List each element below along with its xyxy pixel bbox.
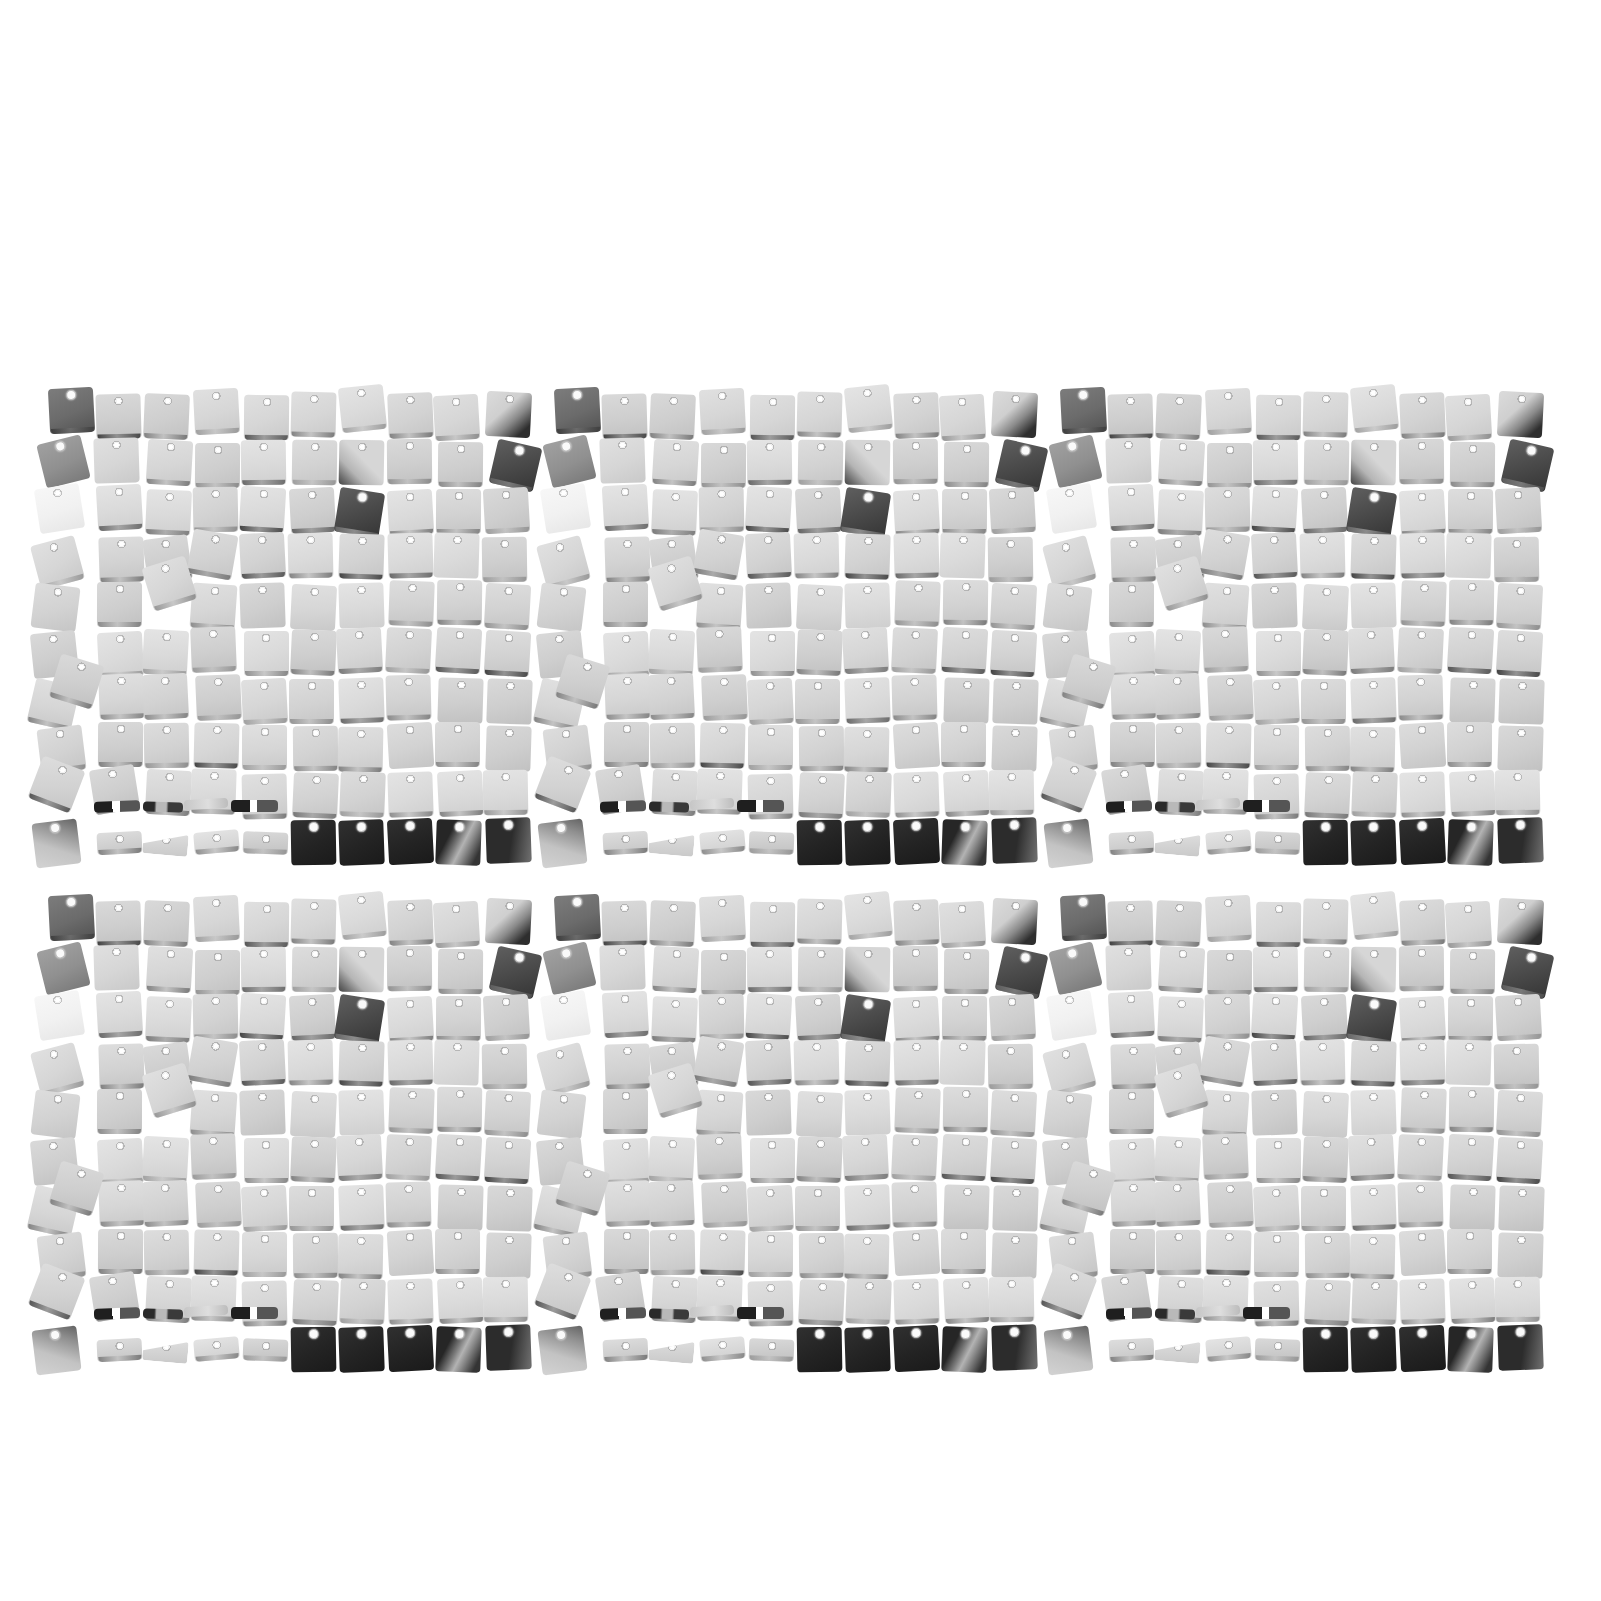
sequin-light xyxy=(485,725,531,771)
sequin-black xyxy=(796,819,842,865)
pin-hole-icon xyxy=(1172,538,1183,549)
pin-hole-icon xyxy=(555,822,566,833)
sequin-half-wedge xyxy=(1154,1338,1201,1364)
pin-hole-icon xyxy=(1008,820,1018,830)
sequin-light xyxy=(795,584,842,631)
sequin-bottom-edge xyxy=(242,572,285,579)
sequin-light xyxy=(437,1087,482,1132)
pin-hole-icon xyxy=(308,901,318,911)
pin-hole-icon xyxy=(553,541,565,553)
sequin-dark2 xyxy=(840,993,891,1044)
pin-hole-icon xyxy=(1221,1278,1231,1288)
sequin-bottom-edge xyxy=(1402,939,1445,946)
pin-hole-icon xyxy=(911,395,921,405)
sequin-light xyxy=(437,949,482,994)
pin-hole-icon xyxy=(454,491,464,501)
sequin-light xyxy=(536,1042,591,1097)
sequin-light xyxy=(748,725,793,770)
pin-hole-icon xyxy=(1516,1235,1526,1245)
sequin-bottom-edge xyxy=(894,478,937,483)
sequin-light xyxy=(748,1280,794,1326)
sequin-light xyxy=(749,395,794,440)
pin-hole-icon xyxy=(403,1184,413,1194)
sequin-light xyxy=(434,1039,480,1085)
sequin-bottom-edge xyxy=(534,1301,576,1321)
sequin-bottom-edge xyxy=(390,811,433,817)
sequin-grad-top xyxy=(537,1325,587,1375)
sequin-bottom-edge xyxy=(1498,527,1541,534)
sequin-bottom-edge xyxy=(895,620,938,627)
sequin-black-side xyxy=(1497,817,1544,864)
sequin-bottom-edge xyxy=(749,1272,792,1277)
pin-hole-icon xyxy=(310,441,320,451)
sequin-light xyxy=(941,1134,989,1182)
sequin-bottom-edge xyxy=(797,432,840,438)
pin-hole-icon xyxy=(259,489,270,500)
sequin-light xyxy=(388,532,434,578)
sequin-light xyxy=(186,528,238,580)
sequin-light xyxy=(97,1089,142,1134)
pin-hole-icon xyxy=(1369,536,1379,546)
sequin-light xyxy=(940,1039,986,1085)
pin-hole-icon xyxy=(1064,1094,1075,1105)
sequin-bottom-edge xyxy=(894,985,937,990)
sequin-bottom-edge xyxy=(990,1316,1033,1322)
sequin-light xyxy=(1204,486,1250,532)
pin-hole-icon xyxy=(164,492,174,502)
pin-hole-icon xyxy=(814,632,824,642)
pin-hole-icon xyxy=(1515,1140,1526,1151)
sequin-light xyxy=(437,1185,483,1231)
sequin-light xyxy=(1042,1090,1092,1140)
sequin-bottom-edge xyxy=(944,620,987,625)
pin-hole-icon xyxy=(210,391,221,402)
pin-hole-icon xyxy=(1270,441,1280,451)
sequin-light xyxy=(242,1232,287,1277)
pin-hole-icon xyxy=(619,487,630,498)
sequin-light xyxy=(30,583,80,633)
sequin-bottom-edge xyxy=(436,762,479,767)
pin-hole-icon xyxy=(667,725,677,735)
sequin-sliver-notch xyxy=(1243,800,1290,812)
sequin-dark2 xyxy=(1346,993,1397,1044)
sequin-light xyxy=(1302,1136,1349,1183)
pin-hole-icon xyxy=(113,396,123,406)
pin-hole-icon xyxy=(1271,996,1282,1007)
pin-hole-icon xyxy=(164,999,174,1009)
sequin-bottom-edge xyxy=(1207,1353,1250,1362)
sequin-light xyxy=(1110,722,1155,767)
pin-hole-icon xyxy=(1368,1186,1378,1196)
sequin-light xyxy=(603,1089,648,1134)
pin-hole-icon xyxy=(765,1283,775,1293)
pin-hole-icon xyxy=(1467,951,1477,961)
sequin-light xyxy=(1494,487,1541,534)
pin-hole-icon xyxy=(258,441,268,451)
sequin-bottom-edge xyxy=(98,1355,141,1362)
pin-hole-icon xyxy=(503,1140,514,1151)
pin-hole-icon xyxy=(863,536,873,546)
sequin-bottom-edge xyxy=(942,762,985,767)
sequin-grad-bl xyxy=(845,947,891,993)
sequin-light xyxy=(1350,1184,1397,1231)
sequin-light xyxy=(1255,902,1300,947)
pin-hole-icon xyxy=(766,1234,776,1244)
pin-hole-icon xyxy=(862,1329,872,1339)
sequin-light xyxy=(1155,900,1202,947)
sequin-light xyxy=(1495,1090,1542,1137)
pin-hole-icon xyxy=(113,487,124,498)
sequin-light xyxy=(1154,673,1201,720)
sequin-light xyxy=(1300,532,1346,578)
sequin-bottom-edge xyxy=(145,763,188,769)
pin-hole-icon xyxy=(765,776,775,786)
pin-hole-icon xyxy=(1370,1281,1380,1291)
pin-hole-icon xyxy=(452,534,462,544)
sequin-black-grad xyxy=(941,819,988,866)
sequin-bottom-edge xyxy=(799,1319,842,1326)
pin-hole-icon xyxy=(1419,582,1429,592)
sequin-bottom-edge xyxy=(1303,432,1346,438)
sequin-light xyxy=(1204,895,1251,942)
sequin-grad-br xyxy=(484,391,531,438)
sequin-bottom-edge xyxy=(291,669,334,676)
sequin-light xyxy=(649,393,696,440)
pin-hole-icon xyxy=(1128,724,1138,734)
sequin-light xyxy=(483,769,529,815)
sequin-light xyxy=(695,1090,743,1138)
sequin-light xyxy=(1446,1039,1492,1085)
sequin-bottom-edge xyxy=(1205,666,1248,673)
sequin-white xyxy=(34,989,85,1040)
sequin-bottom-edge xyxy=(1452,1316,1495,1323)
sequin-black xyxy=(1302,1326,1348,1372)
sequin-light xyxy=(692,528,744,580)
sequin-light xyxy=(1494,994,1541,1041)
pin-hole-icon xyxy=(1270,681,1280,691)
sequin-grad-br xyxy=(484,898,531,945)
sequin-bottom-edge xyxy=(242,1079,285,1086)
sequin-black-side xyxy=(1497,1324,1544,1371)
pin-hole-icon xyxy=(113,903,123,913)
sequin-sliver-mix xyxy=(648,801,688,812)
sequin-light xyxy=(30,1042,85,1097)
sequin-bottom-edge xyxy=(440,1316,483,1323)
pin-hole-icon xyxy=(1061,1329,1072,1340)
sequin-light xyxy=(943,1185,989,1231)
sequin-black xyxy=(844,819,891,866)
pin-hole-icon xyxy=(1221,533,1233,545)
pin-hole-icon xyxy=(213,952,223,962)
sequin-light xyxy=(1494,536,1540,582)
sequin-light xyxy=(385,1182,431,1228)
sequin-bottom-edge xyxy=(1495,1083,1538,1089)
pin-hole-icon xyxy=(667,1232,677,1242)
sequin-bottom-edge xyxy=(99,524,142,531)
sequin-bottom-edge xyxy=(1496,809,1539,815)
sequin-bottom-edge xyxy=(51,934,94,941)
sequin-light xyxy=(1042,583,1092,633)
pin-hole-icon xyxy=(355,388,366,399)
sequin-light xyxy=(1201,583,1249,631)
pin-hole-icon xyxy=(617,440,627,450)
sequin-bottom-edge xyxy=(605,524,648,531)
pin-hole-icon xyxy=(1417,492,1428,503)
sequin-bottom-edge xyxy=(1402,572,1445,578)
sequin-light xyxy=(1207,950,1252,995)
pin-hole-icon xyxy=(405,999,416,1010)
pin-hole-icon xyxy=(1367,895,1378,906)
sequin-light xyxy=(795,1091,842,1138)
sequin-dark2 xyxy=(994,439,1048,493)
pin-hole-icon xyxy=(668,396,678,406)
sequin-bottom-edge xyxy=(1351,1080,1394,1086)
pin-hole-icon xyxy=(1368,585,1378,595)
pin-hole-icon xyxy=(1009,586,1020,597)
pin-hole-icon xyxy=(911,534,921,544)
sequin-light xyxy=(387,392,434,439)
pin-hole-icon xyxy=(1323,775,1333,785)
sequin-black-side xyxy=(485,817,532,864)
pin-hole-icon xyxy=(499,1045,509,1055)
sequin-light xyxy=(98,1181,145,1228)
sequin-bottom-edge xyxy=(701,1353,744,1362)
pin-hole-icon xyxy=(911,1041,921,1051)
sequin-light xyxy=(1250,532,1297,579)
pin-hole-icon xyxy=(261,904,271,914)
sequin-light xyxy=(1254,1280,1300,1326)
sequin-light xyxy=(604,1043,650,1089)
sequin-light xyxy=(1156,1230,1202,1276)
sequin-sliver-notch xyxy=(737,1307,784,1319)
sequin-light xyxy=(1301,679,1346,724)
sequin-light xyxy=(482,536,528,582)
sequin-bottom-edge xyxy=(1302,719,1345,724)
sequin-bottom-edge xyxy=(942,1269,985,1274)
sequin-light xyxy=(338,533,384,579)
sequin-bottom-edge xyxy=(386,1174,429,1181)
pin-hole-icon xyxy=(159,1069,171,1081)
sequin-light xyxy=(601,991,649,1039)
sequin-bottom-edge xyxy=(557,427,600,434)
pin-hole-icon xyxy=(1171,562,1183,574)
pin-hole-icon xyxy=(862,728,872,738)
product-photo-canvas xyxy=(0,0,1601,1601)
pin-hole-icon xyxy=(260,1341,270,1351)
sequin-light xyxy=(744,532,791,579)
sequin-light xyxy=(891,1182,937,1228)
sequin-bottom-edge xyxy=(990,670,1033,678)
sequin-light xyxy=(748,773,794,819)
sequin-light xyxy=(142,1180,189,1227)
sequin-bottom-edge xyxy=(1255,1272,1298,1277)
sequin-light xyxy=(1449,442,1494,487)
pin-hole-icon xyxy=(115,584,125,594)
pin-hole-icon xyxy=(1467,680,1477,690)
sequin-bottom-edge xyxy=(748,479,791,485)
sequin-bottom-edge xyxy=(339,667,382,674)
sequin-light xyxy=(796,629,843,676)
sequin-bottom-edge xyxy=(187,1075,230,1087)
sequin-light xyxy=(988,487,1035,534)
sequin-light xyxy=(1449,1087,1494,1132)
pin-hole-icon xyxy=(161,631,172,642)
pin-hole-icon xyxy=(503,586,514,597)
sequin-bottom-edge xyxy=(1305,1319,1348,1326)
sequin-black xyxy=(1398,818,1445,865)
sequin-light xyxy=(1304,439,1350,485)
sequin-light xyxy=(844,891,893,940)
sequin-bottom-edge xyxy=(291,939,334,945)
sequin-bottom-edge xyxy=(1353,1224,1396,1231)
sequin-light xyxy=(842,1134,889,1181)
pin-hole-icon xyxy=(356,679,366,689)
sequin-light xyxy=(1109,582,1154,627)
sequin-half xyxy=(193,829,240,855)
sequin-light xyxy=(1494,1043,1540,1089)
sequin-bottom-edge xyxy=(388,985,431,990)
pin-hole-icon xyxy=(1321,1093,1331,1103)
pin-hole-icon xyxy=(1368,1235,1378,1245)
pin-hole-icon xyxy=(862,679,872,689)
sequin-light xyxy=(193,723,239,769)
sequin-light xyxy=(943,442,988,487)
pin-hole-icon xyxy=(715,586,726,597)
pin-hole-icon xyxy=(581,660,593,672)
sequin-bottom-edge xyxy=(1352,811,1395,818)
sequin-light xyxy=(435,1229,480,1274)
sequin-bottom-edge xyxy=(388,478,431,483)
sequin-bottom-edge xyxy=(699,666,742,673)
pin-hole-icon xyxy=(210,489,220,499)
pin-hole-icon xyxy=(1416,948,1426,958)
sequin-bottom-edge xyxy=(989,576,1032,582)
sequin-sliver-notch xyxy=(1243,1307,1290,1319)
sequin-light xyxy=(1350,1089,1396,1135)
sequin-light xyxy=(989,630,1037,678)
sequin-light xyxy=(238,532,285,579)
sequin-light xyxy=(536,1090,586,1140)
pin-hole-icon xyxy=(504,728,514,738)
pin-hole-icon xyxy=(1066,948,1078,960)
pin-hole-icon xyxy=(512,952,524,964)
sequin-bottom-edge xyxy=(290,719,333,724)
sequin-light xyxy=(243,902,288,947)
sequin-bottom-edge xyxy=(942,667,985,674)
pin-hole-icon xyxy=(571,390,582,401)
pin-hole-icon xyxy=(405,395,415,405)
pin-hole-icon xyxy=(1366,630,1377,641)
sequin-light xyxy=(844,726,890,772)
pin-hole-icon xyxy=(815,1093,825,1103)
sequin-light xyxy=(1449,1276,1496,1323)
sequin-light xyxy=(1110,536,1156,582)
pin-hole-icon xyxy=(1273,904,1283,914)
pin-hole-icon xyxy=(1271,776,1281,786)
sequin-light xyxy=(1042,1042,1097,1097)
pin-hole-icon xyxy=(1176,999,1186,1009)
pin-hole-icon xyxy=(910,630,920,640)
sequin-bottom-edge xyxy=(99,1031,142,1038)
pin-hole-icon xyxy=(1018,445,1030,457)
pin-hole-icon xyxy=(910,1327,921,1338)
sequin-bottom-edge xyxy=(989,1083,1032,1089)
sequin-light xyxy=(97,1138,144,1185)
pin-hole-icon xyxy=(453,1231,463,1241)
sequin-half xyxy=(96,1338,142,1362)
sequin-light xyxy=(486,1185,532,1231)
sequin-light xyxy=(648,1180,695,1227)
sequin-light xyxy=(604,536,650,582)
pin-hole-icon xyxy=(211,725,221,735)
pin-hole-icon xyxy=(1368,822,1378,832)
sequin-light xyxy=(388,1278,434,1324)
sequin-white xyxy=(34,482,85,533)
pin-hole-icon xyxy=(1320,394,1330,404)
pin-hole-icon xyxy=(1077,897,1088,908)
pin-hole-icon xyxy=(1466,630,1477,641)
sequin-light xyxy=(1202,1133,1249,1180)
pin-hole-icon xyxy=(1467,772,1477,782)
pin-hole-icon xyxy=(159,562,171,574)
pin-hole-icon xyxy=(1462,904,1473,915)
sequin-light xyxy=(652,945,700,993)
sequin-bottom-edge xyxy=(440,809,483,816)
sequin-light xyxy=(1105,944,1151,990)
pin-hole-icon xyxy=(1268,535,1278,545)
sequin-bottom-edge xyxy=(693,1075,736,1087)
sequin-light xyxy=(844,533,890,579)
pin-hole-icon xyxy=(557,487,568,498)
sequin-light xyxy=(989,1276,1035,1322)
sequin-light xyxy=(142,1135,189,1182)
pin-hole-icon xyxy=(261,633,271,643)
sequin-bottom-edge xyxy=(387,1222,430,1228)
sequin-light xyxy=(991,725,1037,771)
sequin-bottom-edge xyxy=(340,811,383,818)
sequin-light xyxy=(988,1043,1034,1089)
sequin-bottom-edge xyxy=(944,482,987,487)
pin-hole-icon xyxy=(111,947,121,957)
sequin-half-wedge xyxy=(648,1338,695,1364)
sequin-white xyxy=(540,482,591,533)
pin-hole-icon xyxy=(961,680,971,690)
sequin-black-grad xyxy=(435,819,482,866)
pin-hole-icon xyxy=(1322,948,1332,958)
sequin-bottom-edge xyxy=(486,1034,529,1041)
pin-hole-icon xyxy=(667,631,678,642)
sequin-light xyxy=(1158,945,1206,993)
sequin-bottom-edge xyxy=(243,813,286,819)
pin-hole-icon xyxy=(910,820,921,831)
sequin-bottom-edge xyxy=(1402,1318,1445,1324)
sequin-black xyxy=(844,1326,891,1373)
sequin-grad-bl xyxy=(845,440,891,486)
pin-hole-icon xyxy=(1171,1069,1183,1081)
sequin-light xyxy=(288,1039,334,1085)
pin-hole-icon xyxy=(1368,491,1379,502)
sequin-black xyxy=(892,1325,939,1372)
pin-hole-icon xyxy=(310,728,320,738)
sequin-light xyxy=(845,771,892,818)
sequin-bottom-edge xyxy=(291,1176,334,1183)
sequin-light xyxy=(386,945,431,990)
sequin-light xyxy=(796,1136,843,1183)
pin-hole-icon xyxy=(209,1278,219,1288)
sequin-bottom-edge xyxy=(28,1301,70,1321)
pin-hole-icon xyxy=(1173,1138,1184,1149)
pin-hole-icon xyxy=(1269,1092,1279,1102)
